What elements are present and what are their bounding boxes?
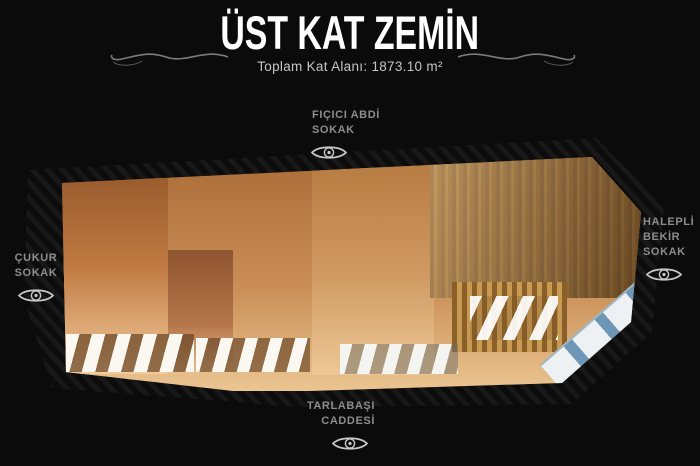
- street-name-line: BEKİR: [643, 231, 680, 243]
- page-header: ÜST KAT ZEMİN Toplam Kat Alanı: 1873.10 …: [0, 8, 700, 74]
- street-name-line: CADDESİ: [321, 415, 375, 427]
- street-view-eye-icon[interactable]: [310, 143, 380, 167]
- street-name-line: HALEPLİ: [643, 216, 694, 228]
- street-name-line: SOKAK: [312, 124, 355, 136]
- street-label-halepli-bekir-sokak: HALEPLİ BEKİR SOKAK: [643, 215, 694, 289]
- street-name-line: SOKAK: [643, 246, 686, 258]
- total-area-subtitle: Toplam Kat Alanı: 1873.10 m²: [0, 59, 700, 74]
- street-name-line: SOKAK: [15, 267, 58, 279]
- room-60-windows: [66, 334, 194, 372]
- room-62-floor: [312, 155, 434, 375]
- street-name-line: FIÇICI ABDİ: [312, 109, 380, 121]
- street-label-ficici-abdi-sokak: FIÇICI ABDİ SOKAK: [312, 108, 380, 167]
- street-label-tarlabasi-caddesi: TARLABAŞI CADDESİ: [295, 399, 375, 458]
- room-63-windows: [470, 296, 558, 340]
- street-label-cukur-sokak: ÇUKUR SOKAK: [10, 251, 62, 310]
- street-name-line: ÇUKUR: [15, 252, 58, 264]
- floorplan-page: B BLOK 60 61 62 63 64 ÜST KAT ZEMİN: [0, 0, 700, 466]
- flourish-ornament: [108, 44, 228, 70]
- room-62-windows: [340, 344, 458, 374]
- street-view-eye-icon[interactable]: [645, 265, 694, 289]
- page-title: ÜST KAT ZEMİN: [221, 8, 480, 58]
- street-view-eye-icon[interactable]: [10, 286, 62, 310]
- street-view-eye-icon[interactable]: [295, 434, 369, 458]
- street-name-line: TARLABAŞI: [307, 400, 375, 412]
- room-61-windows: [196, 338, 310, 372]
